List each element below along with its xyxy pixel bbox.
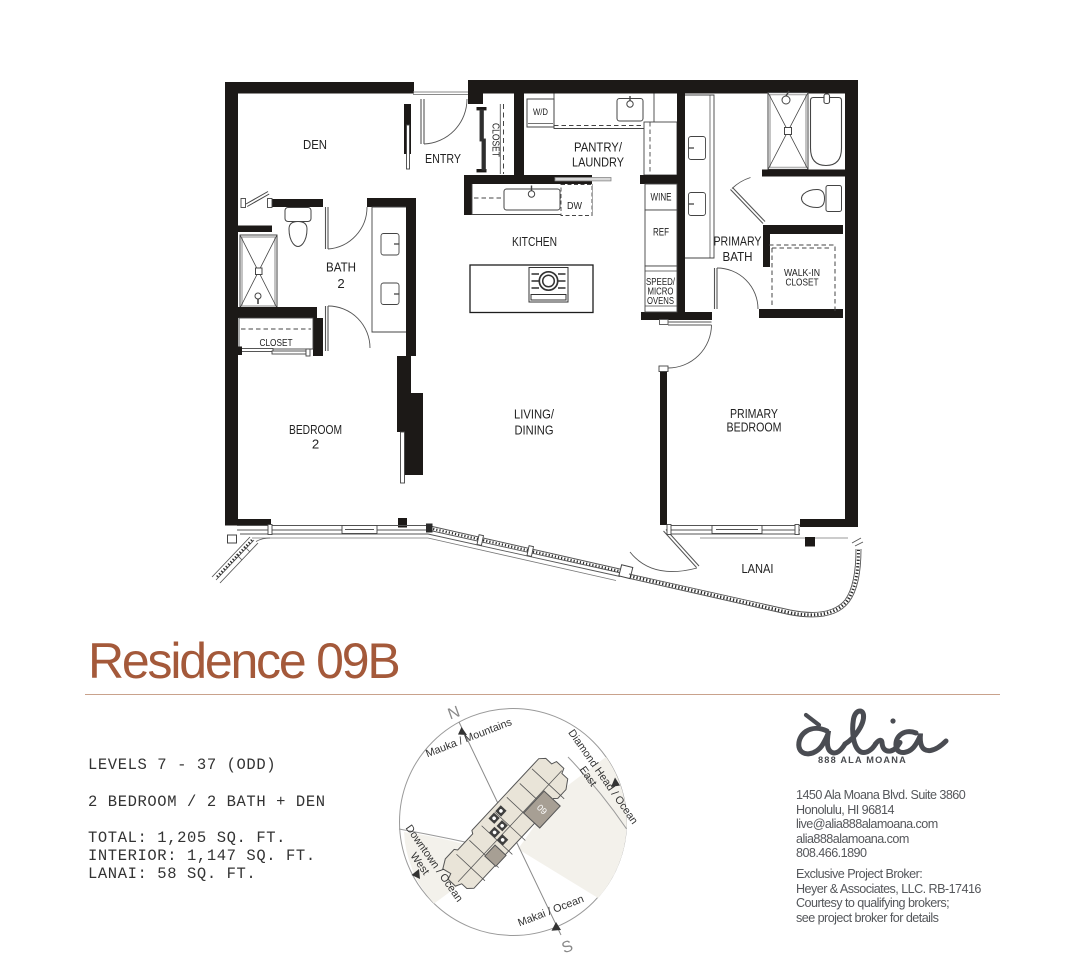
svg-text:DEN: DEN [303, 137, 327, 152]
svg-text:DW: DW [567, 200, 582, 212]
svg-text:OVENS: OVENS [647, 295, 674, 307]
svg-text:2: 2 [312, 437, 319, 452]
svg-text:BATH: BATH [326, 260, 356, 275]
svg-text:PANTRY/: PANTRY/ [574, 140, 622, 155]
svg-text:CLOSET: CLOSET [786, 277, 819, 289]
svg-text:LAUNDRY: LAUNDRY [572, 155, 624, 170]
svg-text:WINE: WINE [651, 192, 672, 204]
svg-text:BEDROOM: BEDROOM [727, 420, 782, 435]
svg-text:LANAI: LANAI [742, 561, 774, 576]
svg-text:DINING: DINING [515, 423, 554, 438]
svg-text:PRIMARY: PRIMARY [714, 234, 762, 249]
svg-text:2: 2 [337, 276, 344, 291]
svg-text:S: S [560, 938, 576, 958]
svg-text:LIVING/: LIVING/ [514, 407, 554, 422]
svg-text:W/D: W/D [533, 106, 548, 117]
svg-text:BATH: BATH [723, 249, 753, 264]
svg-text:BEDROOM: BEDROOM [289, 422, 342, 437]
svg-text:KITCHEN: KITCHEN [512, 234, 557, 249]
svg-text:ENTRY: ENTRY [425, 151, 461, 166]
svg-text:CLOSET: CLOSET [490, 123, 502, 157]
svg-text:REF: REF [653, 227, 669, 239]
svg-text:N: N [446, 703, 463, 723]
svg-text:CLOSET: CLOSET [260, 337, 293, 349]
